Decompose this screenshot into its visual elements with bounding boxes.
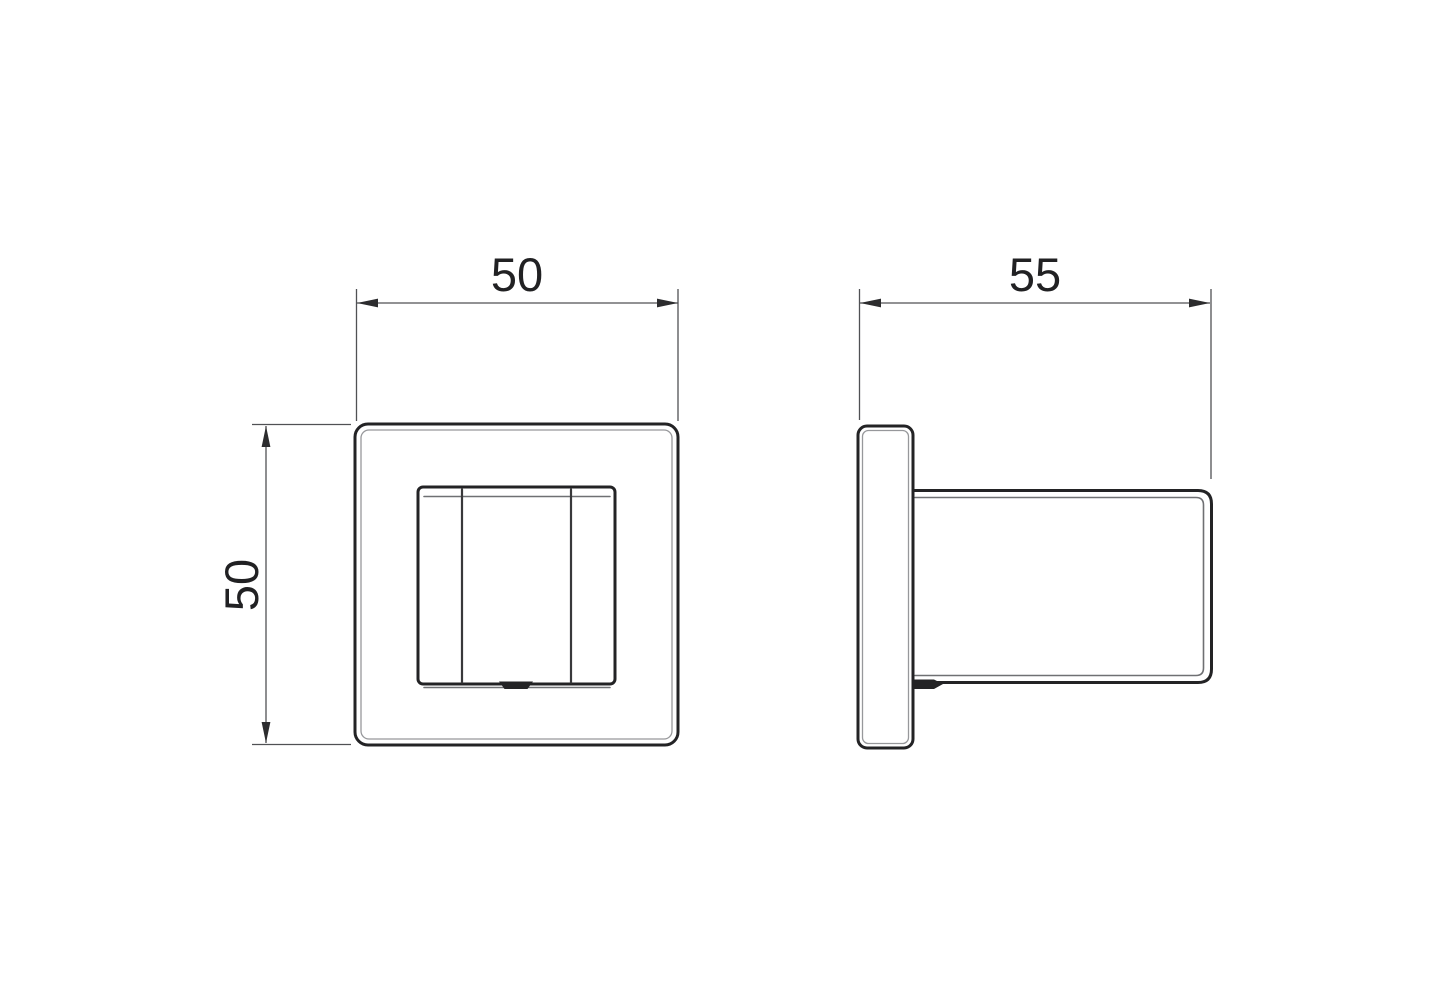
front-height-label: 50 — [215, 559, 268, 611]
side-view — [858, 426, 1212, 748]
side-body-outline — [913, 491, 1212, 683]
front-knob-outline — [418, 487, 615, 684]
technical-drawing-page: 50 50 55 — [0, 0, 1430, 1000]
front-height-arrowhead-bottom — [262, 722, 271, 743]
side-depth-arrowhead-left — [860, 299, 881, 308]
front-view — [355, 424, 678, 745]
front-width-arrowhead-right — [657, 299, 678, 308]
side-plate-outline — [858, 426, 913, 748]
front-width-label: 50 — [491, 248, 543, 301]
front-knob-bottom-tab — [499, 682, 533, 690]
side-depth-label: 55 — [1009, 248, 1061, 301]
front-width-arrowhead-left — [357, 299, 378, 308]
technical-drawing: 50 50 55 — [0, 0, 1430, 1000]
dimension-front-height: 50 — [215, 425, 351, 745]
side-depth-arrowhead-right — [1189, 299, 1210, 308]
dimension-front-width: 50 — [357, 248, 679, 421]
front-height-arrowhead-top — [262, 426, 271, 447]
